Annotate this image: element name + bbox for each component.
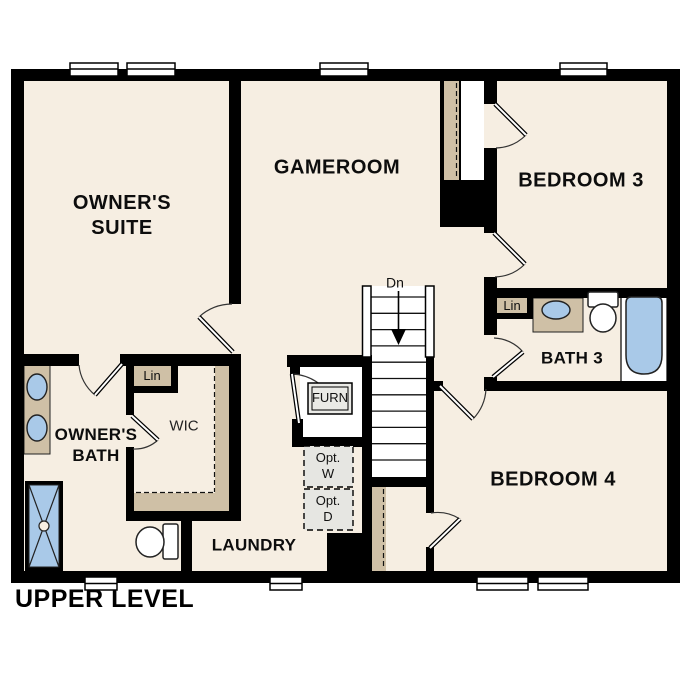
window-top-1 bbox=[70, 63, 118, 76]
toilet-owners bbox=[136, 524, 178, 559]
room-label-bedroom3: BEDROOM 3 bbox=[518, 169, 644, 194]
floorplan-upper-level: OWNER'S SUITE GAMEROOM BEDROOM 3 BEDROOM… bbox=[0, 0, 687, 687]
label-linen-wic: Lin bbox=[143, 368, 160, 384]
stair-railing-right bbox=[426, 286, 435, 357]
room-label-owners-suite: OWNER'S SUITE bbox=[73, 191, 171, 241]
stair-railing-left bbox=[363, 286, 372, 357]
bathtub bbox=[626, 297, 662, 374]
window-bottom-3 bbox=[477, 577, 528, 590]
label-furnace: FURN bbox=[312, 390, 348, 406]
shower bbox=[25, 481, 63, 571]
toilet-bath3 bbox=[588, 292, 618, 332]
room-label-owners-bath: OWNER'S BATH bbox=[55, 424, 138, 467]
window-bottom-4 bbox=[538, 577, 588, 590]
wic-shelf-right bbox=[215, 366, 229, 511]
label-stairs-down: Dn bbox=[386, 274, 404, 292]
window-top-4 bbox=[560, 63, 607, 76]
room-label-laundry: LAUNDRY bbox=[212, 534, 297, 555]
sink-bath3 bbox=[542, 301, 570, 319]
label-optional-washer: Opt. W bbox=[316, 450, 341, 483]
room-label-bath3: BATH 3 bbox=[541, 347, 603, 368]
room-label-bedroom4: BEDROOM 4 bbox=[490, 468, 616, 493]
sink-owners-1 bbox=[27, 374, 47, 400]
label-linen-bath3: Lin bbox=[503, 298, 520, 314]
label-optional-dryer: Opt. D bbox=[316, 493, 341, 526]
window-bottom-2 bbox=[270, 577, 302, 590]
wic-shelf-bottom bbox=[134, 493, 229, 511]
room-label-gameroom: GAMEROOM bbox=[274, 156, 400, 181]
plan-title: UPPER LEVEL bbox=[15, 585, 194, 614]
window-top-3 bbox=[320, 63, 368, 76]
window-top-2 bbox=[127, 63, 175, 76]
room-label-wic: WIC bbox=[169, 418, 198, 437]
sink-owners-2 bbox=[27, 415, 47, 441]
floorplan-drawing bbox=[0, 0, 687, 687]
